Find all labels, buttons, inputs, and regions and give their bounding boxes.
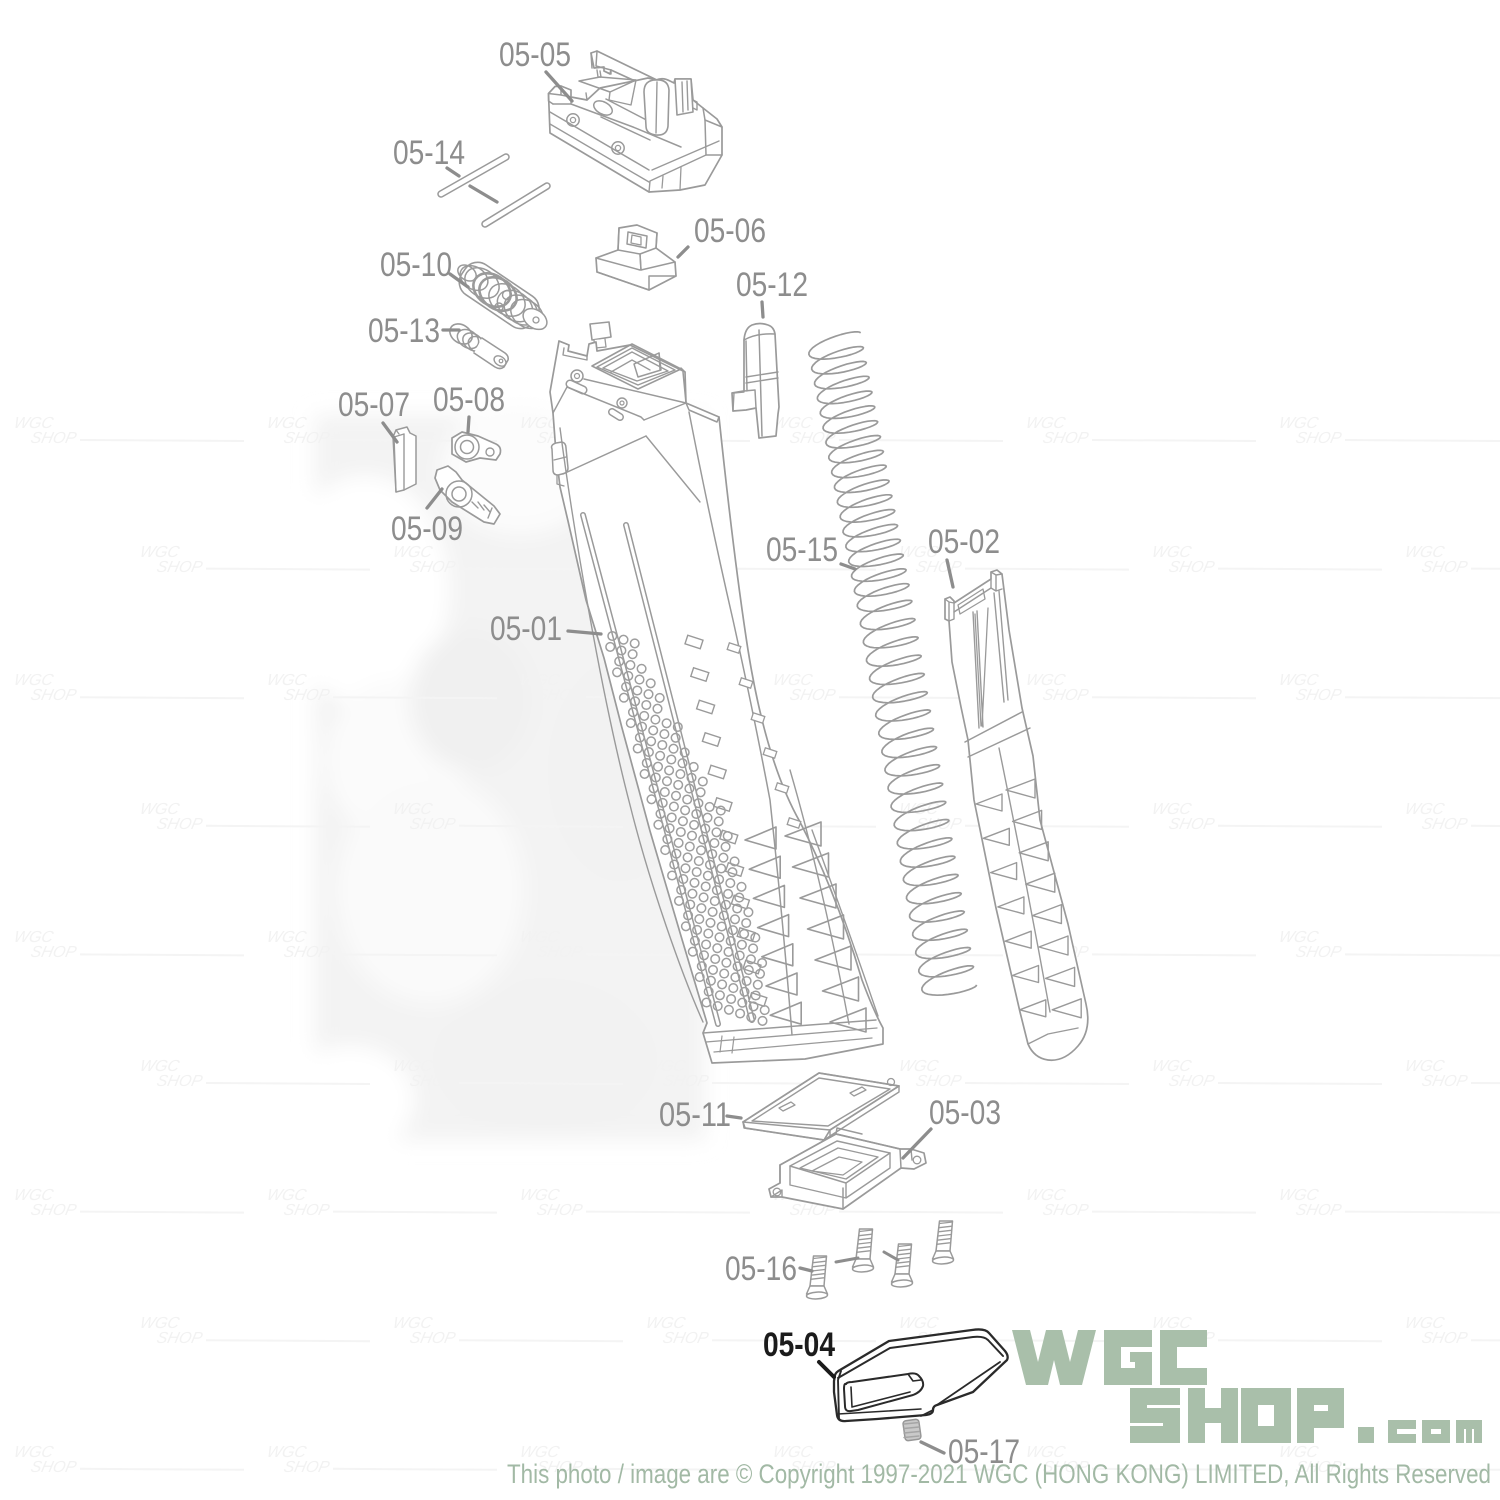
- svg-text:05-08: 05-08: [433, 381, 505, 419]
- svg-text:SHOP: SHOP: [282, 686, 331, 704]
- svg-text:SHOP: SHOP: [1294, 1201, 1343, 1219]
- svg-text:SHOP: SHOP: [408, 558, 457, 576]
- svg-text:SHOP: SHOP: [1041, 686, 1090, 704]
- svg-text:05-03: 05-03: [929, 1094, 1001, 1132]
- svg-text:SHOP: SHOP: [155, 1329, 204, 1347]
- svg-text:SHOP: SHOP: [1167, 1072, 1216, 1090]
- svg-text:SHOP: SHOP: [282, 1458, 331, 1476]
- svg-text:05-14: 05-14: [393, 134, 465, 172]
- svg-text:05-05: 05-05: [499, 36, 571, 74]
- svg-text:SHOP: SHOP: [155, 815, 204, 833]
- svg-text:SHOP: SHOP: [155, 558, 204, 576]
- svg-text:SHOP: SHOP: [1167, 815, 1216, 833]
- svg-text:SHOP: SHOP: [29, 1458, 78, 1476]
- svg-text:SHOP: SHOP: [914, 1072, 963, 1090]
- svg-text:SHOP: SHOP: [788, 686, 837, 704]
- svg-text:SHOP: SHOP: [535, 943, 584, 961]
- svg-text:05-11: 05-11: [659, 1096, 731, 1134]
- svg-text:05-10: 05-10: [380, 246, 452, 284]
- svg-text:SHOP: SHOP: [408, 815, 457, 833]
- svg-text:SHOP: SHOP: [1294, 429, 1343, 447]
- svg-text:SHOP: SHOP: [535, 1201, 584, 1219]
- svg-text:05-16: 05-16: [725, 1250, 797, 1288]
- svg-text:SHOP: SHOP: [1041, 429, 1090, 447]
- svg-text:SHOP: SHOP: [1167, 558, 1216, 576]
- svg-text:05-06: 05-06: [694, 212, 766, 250]
- svg-text:05-01: 05-01: [490, 610, 562, 648]
- svg-text:SHOP: SHOP: [661, 1072, 710, 1090]
- svg-text:05-15: 05-15: [766, 531, 838, 569]
- svg-text:SHOP: SHOP: [661, 1329, 710, 1347]
- svg-text:SHOP: SHOP: [1294, 943, 1343, 961]
- svg-text:SHOP: SHOP: [1420, 1329, 1469, 1347]
- svg-text:This photo / image are © Copyr: This photo / image are © Copyright 1997-…: [507, 1459, 1491, 1489]
- svg-text:SHOP: SHOP: [1294, 686, 1343, 704]
- svg-text:SHOP: SHOP: [282, 943, 331, 961]
- svg-text:05-07: 05-07: [338, 386, 410, 424]
- svg-text:05-04: 05-04: [763, 1326, 835, 1364]
- svg-text:05-02: 05-02: [928, 523, 1000, 561]
- svg-text:05-09: 05-09: [391, 510, 463, 548]
- svg-text:SHOP: SHOP: [29, 429, 78, 447]
- svg-text:SHOP: SHOP: [29, 686, 78, 704]
- svg-text:05-12: 05-12: [736, 266, 808, 304]
- svg-text:SHOP: SHOP: [1420, 815, 1469, 833]
- svg-text:SHOP: SHOP: [29, 1201, 78, 1219]
- svg-text:SHOP: SHOP: [29, 943, 78, 961]
- svg-text:05-13: 05-13: [368, 312, 440, 350]
- svg-text:SHOP: SHOP: [282, 429, 331, 447]
- svg-text:SHOP: SHOP: [535, 686, 584, 704]
- svg-text:SHOP: SHOP: [1041, 1201, 1090, 1219]
- svg-text:SHOP: SHOP: [1420, 1072, 1469, 1090]
- svg-text:SHOP: SHOP: [155, 1072, 204, 1090]
- svg-text:SHOP: SHOP: [408, 1329, 457, 1347]
- svg-text:SHOP: SHOP: [408, 1072, 457, 1090]
- svg-text:SHOP: SHOP: [282, 1201, 331, 1219]
- svg-text:SHOP: SHOP: [1420, 558, 1469, 576]
